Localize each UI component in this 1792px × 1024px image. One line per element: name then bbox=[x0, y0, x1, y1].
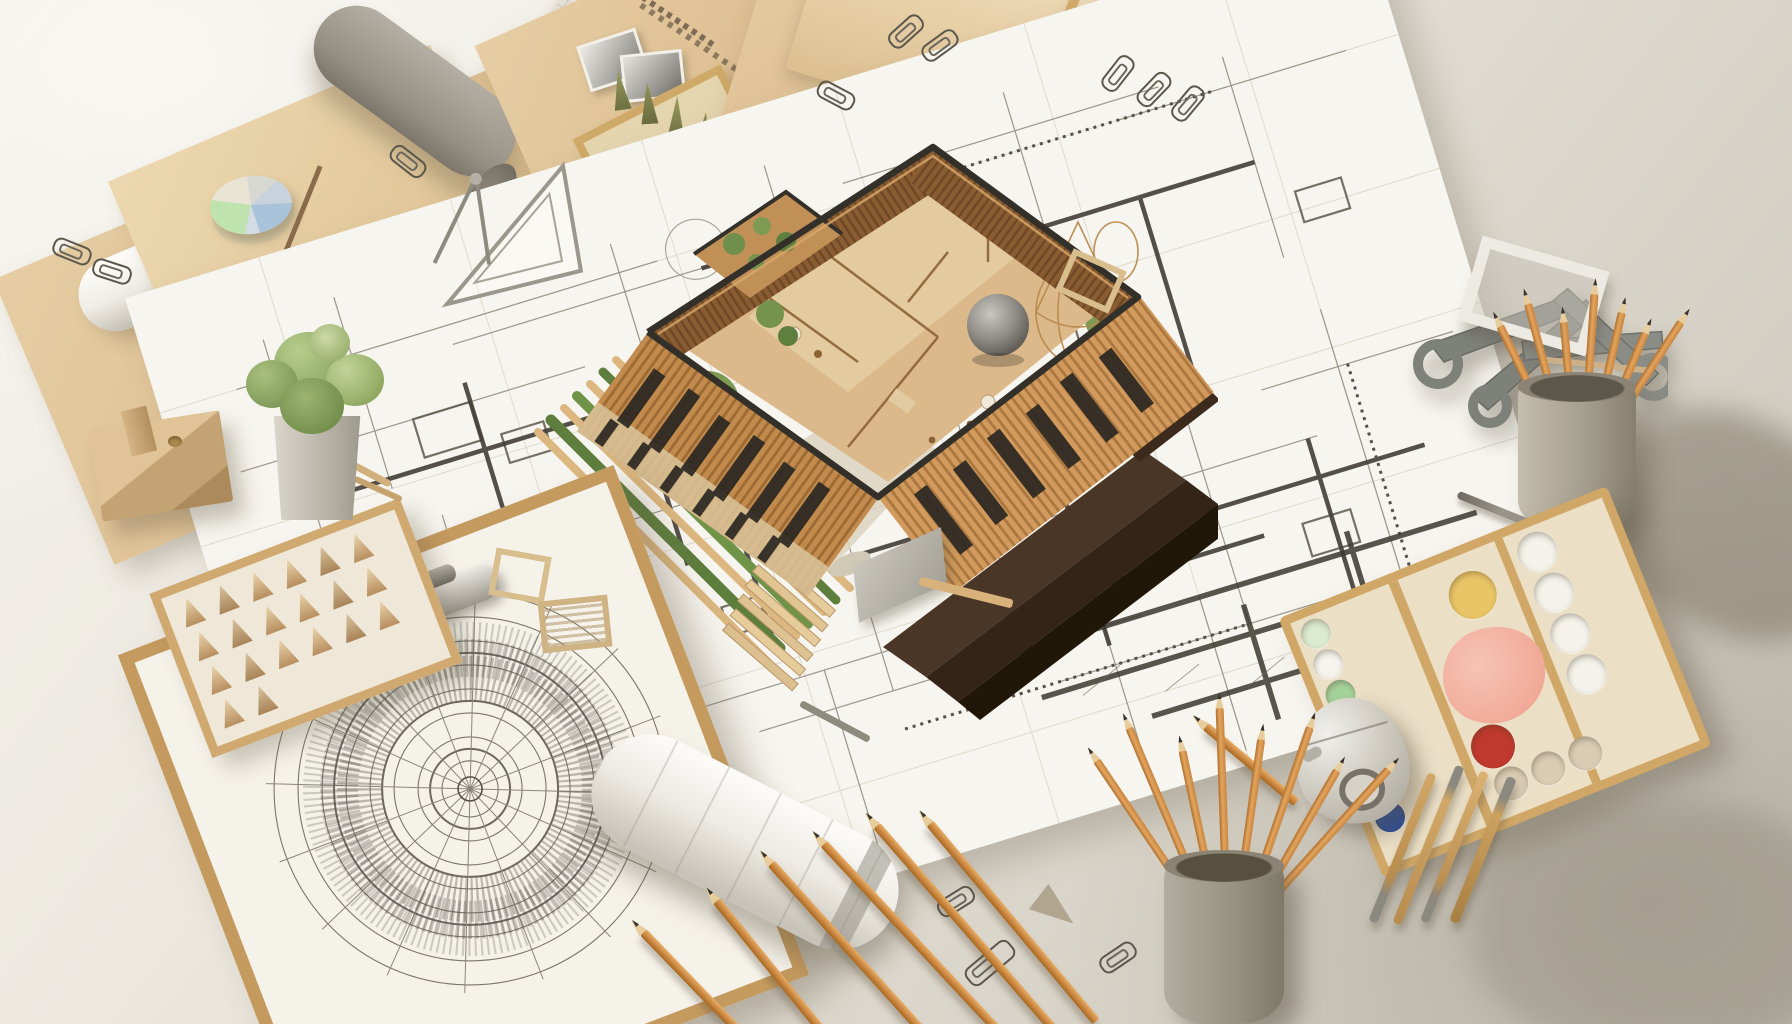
cone-piece bbox=[254, 600, 289, 637]
box-model-button bbox=[168, 436, 182, 447]
paint-well bbox=[1528, 566, 1580, 618]
cone-piece bbox=[207, 579, 242, 616]
pencil-tip-piece bbox=[1029, 884, 1083, 936]
cone-piece bbox=[275, 554, 310, 591]
cup-rim-bottom bbox=[1164, 850, 1284, 882]
cone-piece bbox=[355, 561, 390, 598]
model-dome bbox=[967, 294, 1029, 356]
paint-well bbox=[1563, 731, 1607, 775]
paper-clip bbox=[961, 937, 1018, 990]
workspace-scene bbox=[0, 0, 1792, 1024]
paint-well bbox=[1511, 526, 1563, 578]
paint-well bbox=[1526, 746, 1570, 790]
cone-piece bbox=[212, 693, 247, 730]
mouse-button-seam bbox=[1306, 721, 1387, 746]
cone-piece bbox=[308, 541, 343, 578]
cone-piece bbox=[267, 634, 302, 671]
compass-icon bbox=[403, 159, 530, 286]
cone-piece bbox=[287, 587, 322, 624]
cone-piece bbox=[334, 608, 369, 645]
cone-piece bbox=[300, 621, 335, 658]
cone-piece bbox=[246, 680, 281, 717]
paint-well bbox=[1296, 614, 1335, 653]
cup-rim bbox=[1518, 372, 1636, 402]
cone-piece bbox=[174, 592, 209, 629]
paper-clip bbox=[934, 883, 978, 920]
wood-frame-bit-2 bbox=[488, 548, 551, 605]
shadow-bottom-right bbox=[1470, 800, 1792, 1024]
palette-yellow-well bbox=[1442, 564, 1504, 626]
cone-piece bbox=[241, 567, 276, 604]
courtyard-plant-2 bbox=[778, 326, 798, 346]
cone-piece bbox=[368, 595, 403, 632]
plant-foliage bbox=[240, 322, 400, 442]
paint-well bbox=[1544, 607, 1596, 659]
wood-frame-bit-3 bbox=[537, 594, 612, 653]
paper-clip bbox=[1096, 938, 1140, 976]
cone-piece bbox=[233, 647, 268, 684]
cone-piece bbox=[220, 613, 255, 650]
pencil-cup-bottom bbox=[1164, 862, 1284, 1024]
cone-piece bbox=[200, 660, 235, 697]
paint-well bbox=[1309, 645, 1348, 684]
cone-piece bbox=[342, 528, 377, 565]
cone-piece bbox=[187, 626, 222, 663]
cone-piece bbox=[321, 574, 356, 611]
paint-well bbox=[1561, 648, 1613, 700]
